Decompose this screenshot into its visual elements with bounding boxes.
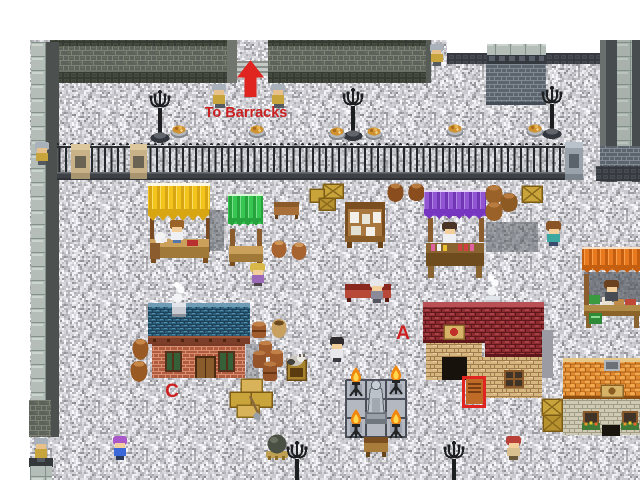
svg-text:C: C: [165, 381, 179, 402]
svg-text:A: A: [396, 323, 410, 344]
